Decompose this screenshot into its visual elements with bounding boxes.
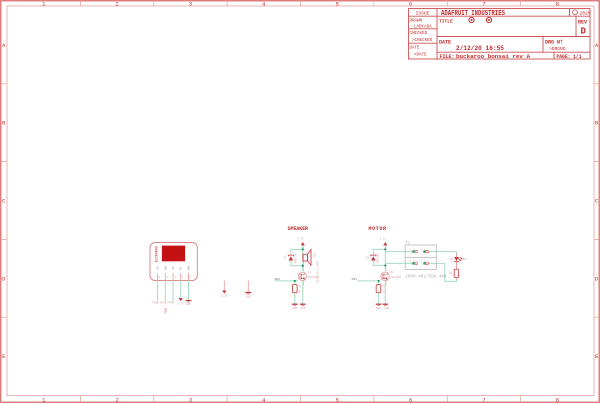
svg-text:SP1: SP1: [313, 252, 316, 257]
svg-text:>DRGNO: >DRGNO: [549, 46, 566, 52]
svg-text:E: E: [2, 354, 5, 360]
svg-text:X1: X1: [405, 241, 410, 245]
svg-text:3V: 3V: [157, 266, 160, 270]
svg-text:8: 8: [556, 397, 559, 403]
svg-text:R1 1K: R1 1K: [299, 284, 302, 292]
svg-text:CHECKED: CHECKED: [410, 32, 428, 36]
svg-text:8: 8: [556, 2, 559, 8]
svg-text:3.3V: 3.3V: [297, 238, 304, 241]
svg-text:PB4: PB4: [167, 301, 173, 304]
svg-text:PB5: PB5: [152, 301, 158, 304]
svg-text:6: 6: [409, 397, 412, 403]
svg-text:3: 3: [189, 2, 192, 8]
svg-text:2/12/20 16:55: 2/12/20 16:55: [456, 45, 504, 52]
svg-text:>CHECKED: >CHECKED: [412, 38, 433, 43]
svg-text:MBR120: MBR120: [294, 253, 297, 263]
svg-text:GND: GND: [384, 307, 389, 310]
svg-text:TITLE: TITLE: [439, 19, 453, 25]
svg-text:PMV30UN: PMV30UN: [390, 276, 401, 279]
svg-text:DATE: DATE: [410, 47, 421, 51]
svg-text:R2 1K: R2 1K: [382, 284, 385, 292]
svg-text:GND: GND: [186, 303, 191, 306]
svg-text:GND: GND: [246, 296, 251, 299]
svg-text:GND: GND: [376, 307, 381, 310]
svg-text:R3: R3: [449, 272, 453, 275]
svg-text:C: C: [595, 199, 598, 205]
svg-text:6: 6: [409, 2, 412, 8]
svg-text:PMV30UN: PMV30UN: [308, 276, 319, 279]
svg-text:SPEAKER: SPEAKER: [288, 226, 309, 232]
svg-text:C: C: [2, 199, 5, 205]
svg-text:buckaroo bonsai rev A: buckaroo bonsai rev A: [456, 53, 531, 60]
svg-text:3.3V: 3.3V: [177, 303, 184, 306]
svg-text:ADAFRUIT INDUSTRIES: ADAFRUIT INDUSTRIES: [441, 10, 505, 18]
svg-text:4: 4: [262, 2, 265, 8]
svg-text:PAGE: 1/1: PAGE: 1/1: [557, 54, 582, 60]
svg-text:7: 7: [482, 397, 485, 403]
svg-text:1: 1: [42, 397, 45, 403]
svg-text:DRAWN: DRAWN: [410, 20, 423, 24]
svg-text:Q2: Q2: [390, 271, 394, 274]
svg-text:LADYADA: LADYADA: [414, 26, 432, 30]
svg-text:Q1: Q1: [308, 271, 312, 274]
svg-text:5: 5: [336, 397, 339, 403]
svg-text:2: 2: [115, 2, 118, 8]
svg-text:3.3V: 3.3V: [379, 238, 386, 241]
svg-text:EN: EN: [164, 266, 167, 270]
svg-text:D3: D3: [450, 258, 454, 261]
svg-text:>DATE: >DATE: [414, 53, 427, 58]
svg-text:GND: GND: [188, 265, 191, 270]
svg-text:VH: VH: [172, 266, 175, 270]
svg-text:DATE: DATE: [439, 40, 451, 46]
svg-text:BUCKAROO: BUCKAROO: [155, 246, 159, 262]
svg-text:D2: D2: [366, 257, 370, 260]
svg-text:3: 3: [189, 397, 192, 403]
svg-text:FILE:: FILE:: [440, 54, 455, 60]
svg-text:D: D: [581, 27, 587, 37]
svg-text:5: 5: [336, 2, 339, 8]
svg-text:PB0: PB0: [275, 278, 281, 281]
svg-text:D1: D1: [283, 257, 287, 260]
svg-text:MBR120: MBR120: [377, 253, 380, 263]
svg-text:PB3: PB3: [160, 301, 166, 304]
svg-text:2020: 2020: [580, 10, 591, 16]
svg-text:DRG N†: DRG N†: [545, 40, 563, 46]
svg-text:5V: 5V: [180, 266, 183, 270]
svg-text:GND: GND: [292, 307, 297, 310]
svg-text:ISSUE: ISSUE: [416, 11, 430, 17]
svg-text:REV: REV: [578, 20, 587, 26]
svg-text:PB1: PB1: [352, 278, 358, 281]
svg-text:E: E: [595, 354, 598, 360]
svg-text:2: 2: [115, 397, 118, 403]
svg-text:SPEAKER_3.5MM: SPEAKER_3.5MM: [317, 261, 320, 283]
svg-text:RST: RST: [164, 307, 168, 313]
svg-text:4: 4: [262, 397, 265, 403]
svg-text:GND: GND: [300, 307, 305, 310]
svg-text:RED: RED: [462, 258, 467, 261]
svg-text:1: 1: [42, 2, 45, 8]
svg-text:MOTOR: MOTOR: [369, 226, 387, 232]
svg-text:D: D: [2, 276, 5, 282]
svg-text:2060-402/998-404: 2060-402/998-404: [405, 274, 447, 279]
svg-text:D: D: [595, 276, 598, 282]
svg-text:7: 7: [482, 2, 485, 8]
svg-text:3.3V: 3.3V: [221, 295, 228, 298]
